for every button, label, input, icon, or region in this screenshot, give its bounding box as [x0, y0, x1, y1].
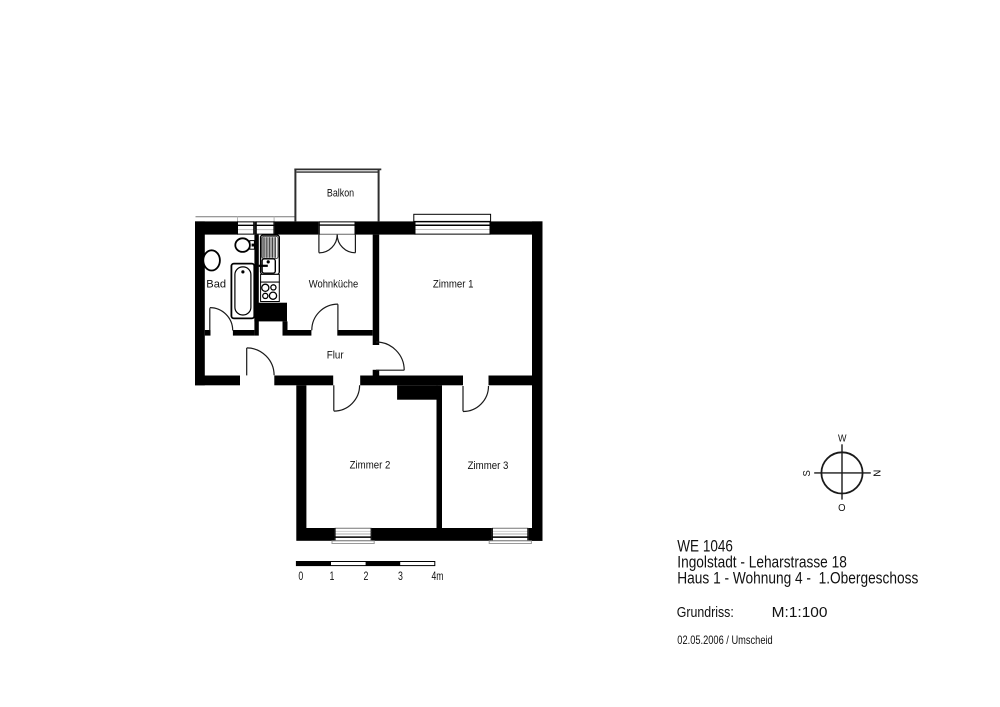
svg-text:Zimmer 1: Zimmer 1	[433, 278, 474, 290]
svg-text:M:1:100: M:1:100	[772, 604, 828, 621]
svg-text:1: 1	[329, 571, 334, 583]
svg-text:Zimmer 3: Zimmer 3	[468, 460, 509, 472]
svg-text:02.05.2006 / Umscheid: 02.05.2006 / Umscheid	[677, 633, 772, 647]
svg-text:3: 3	[398, 571, 403, 583]
svg-text:2: 2	[364, 571, 369, 583]
svg-text:Zimmer 2: Zimmer 2	[350, 460, 391, 472]
svg-text:4m: 4m	[432, 571, 444, 583]
svg-text:Bad: Bad	[206, 279, 226, 291]
svg-text:0: 0	[298, 571, 303, 583]
svg-text:WE 1046: WE 1046	[677, 537, 733, 555]
svg-text:O: O	[838, 502, 845, 514]
svg-text:Flur: Flur	[327, 349, 344, 361]
svg-text:Wohnküche: Wohnküche	[309, 279, 359, 291]
svg-text:N: N	[871, 470, 883, 477]
svg-text:Haus 1 - Wohnung 4 - 1.Oberge: Haus 1 - Wohnung 4 - 1.Obergeschoss	[677, 570, 918, 588]
svg-text:W: W	[838, 433, 847, 445]
svg-text:Grundriss:: Grundriss:	[677, 604, 734, 621]
svg-text:S: S	[801, 470, 813, 476]
svg-text:Balkon: Balkon	[327, 188, 354, 200]
